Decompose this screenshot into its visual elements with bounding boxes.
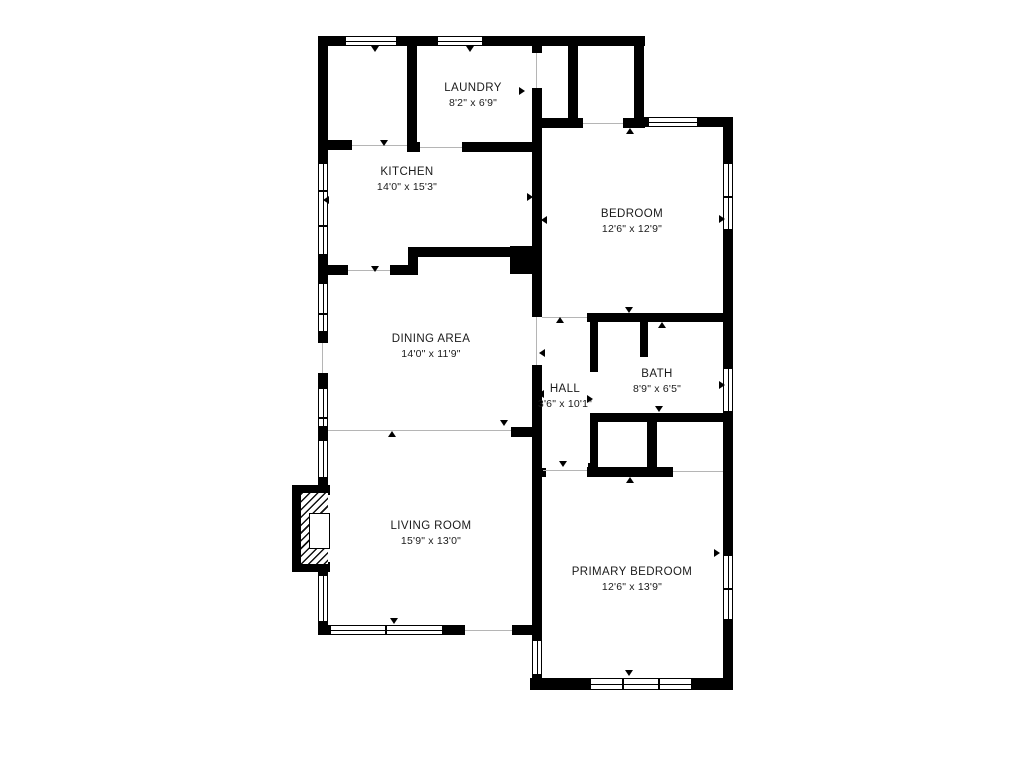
room-dimensions: 3'6" x 10'1" — [475, 399, 655, 410]
window-mullion — [319, 313, 327, 315]
door-arrow-icon — [556, 317, 564, 323]
opening-line — [583, 123, 623, 124]
window — [437, 36, 483, 46]
window-mullion — [622, 679, 624, 689]
door-arrow-icon — [559, 461, 567, 467]
wall — [538, 118, 583, 128]
door-arrow-icon — [625, 670, 633, 676]
window — [330, 625, 443, 635]
room-dimensions: 8'2" x 6'9" — [383, 98, 563, 109]
wall — [590, 413, 727, 422]
window — [723, 555, 733, 620]
opening-line — [420, 147, 462, 148]
room-name: BATH — [567, 368, 747, 380]
opening-line — [322, 343, 323, 373]
door-arrow-icon — [500, 248, 508, 254]
door-arrow-icon — [626, 128, 634, 134]
window-mullion — [658, 679, 660, 689]
door-arrow-icon — [626, 477, 634, 483]
door-arrow-icon — [539, 349, 545, 357]
opening-line — [536, 317, 537, 365]
room-label-living-room: LIVING ROOM 15'9" x 13'0" — [341, 520, 521, 547]
window — [318, 440, 328, 478]
window — [590, 678, 692, 690]
door-arrow-icon — [371, 46, 379, 52]
wall — [640, 318, 648, 357]
room-name: LAUNDRY — [383, 82, 563, 94]
wall — [407, 142, 420, 152]
room-label-bedroom: BEDROOM 12'6" x 12'9" — [542, 208, 722, 235]
door-arrow-icon — [466, 46, 474, 52]
window — [648, 117, 698, 127]
room-name: LIVING ROOM — [341, 520, 521, 532]
window — [318, 388, 328, 427]
wall — [318, 140, 352, 150]
door-arrow-icon — [390, 618, 398, 624]
door-arrow-icon — [380, 140, 388, 146]
floor-plan-canvas: LAUNDRY 8'2" x 6'9" KITCHEN 14'0" x 15'3… — [0, 0, 1024, 768]
wall — [408, 247, 418, 275]
door-arrow-icon — [714, 549, 720, 557]
room-dimensions: 14'0" x 15'3" — [317, 182, 497, 193]
room-dimensions: 12'6" x 13'9" — [542, 582, 722, 593]
room-dimensions: 12'6" x 12'9" — [542, 224, 722, 235]
wall — [512, 625, 542, 635]
room-label-primary-bedroom: PRIMARY BEDROOM 12'6" x 13'9" — [542, 566, 722, 593]
window — [318, 283, 328, 332]
door-arrow-icon — [625, 307, 633, 313]
opening-line — [328, 430, 511, 431]
wall — [587, 467, 673, 477]
wall — [588, 463, 597, 468]
room-dimensions: 15'9" x 13'0" — [341, 536, 521, 547]
door-arrow-icon — [323, 196, 329, 204]
window-mullion — [385, 626, 387, 634]
room-label-laundry: LAUNDRY 8'2" x 6'9" — [383, 82, 563, 109]
room-dimensions: 8'9" x 6'5" — [567, 384, 747, 395]
window-mullion — [319, 417, 327, 419]
wall — [418, 247, 510, 257]
door-arrow-icon — [658, 322, 666, 328]
opening-line — [348, 270, 390, 271]
fireplace-firebox — [309, 513, 330, 549]
door-arrow-icon — [500, 420, 508, 426]
room-label-dining-area: DINING AREA 14'0" x 11'9" — [341, 333, 521, 360]
wall — [532, 36, 542, 53]
room-name: DINING AREA — [341, 333, 521, 345]
wall — [634, 36, 644, 127]
room-name: KITCHEN — [317, 166, 497, 178]
wall — [318, 265, 348, 275]
wall — [590, 313, 598, 372]
window-mullion — [724, 196, 732, 198]
opening-line — [465, 630, 512, 631]
opening-line — [542, 317, 587, 318]
wall — [390, 265, 408, 275]
window-mullion — [319, 225, 327, 227]
room-dimensions: 14'0" x 11'9" — [341, 349, 521, 360]
door-arrow-icon — [388, 431, 396, 437]
opening-line — [673, 471, 723, 472]
door-arrow-icon — [655, 406, 663, 412]
window — [532, 640, 542, 675]
window-mullion — [724, 588, 732, 590]
opening-line — [543, 470, 587, 471]
wall — [587, 313, 733, 322]
wall — [623, 118, 645, 128]
room-label-bath: BATH 8'9" x 6'5" — [567, 368, 747, 395]
room-label-kitchen: KITCHEN 14'0" x 15'3" — [317, 166, 497, 193]
room-name: PRIMARY BEDROOM — [542, 566, 722, 578]
window — [345, 36, 397, 46]
window — [318, 575, 328, 622]
door-arrow-icon — [527, 193, 533, 201]
wall — [462, 142, 542, 152]
chimney — [510, 246, 542, 274]
door-arrow-icon — [371, 266, 379, 272]
wall — [568, 36, 578, 128]
wall — [647, 422, 657, 467]
door-arrow-icon — [464, 143, 472, 149]
room-name: BEDROOM — [542, 208, 722, 220]
